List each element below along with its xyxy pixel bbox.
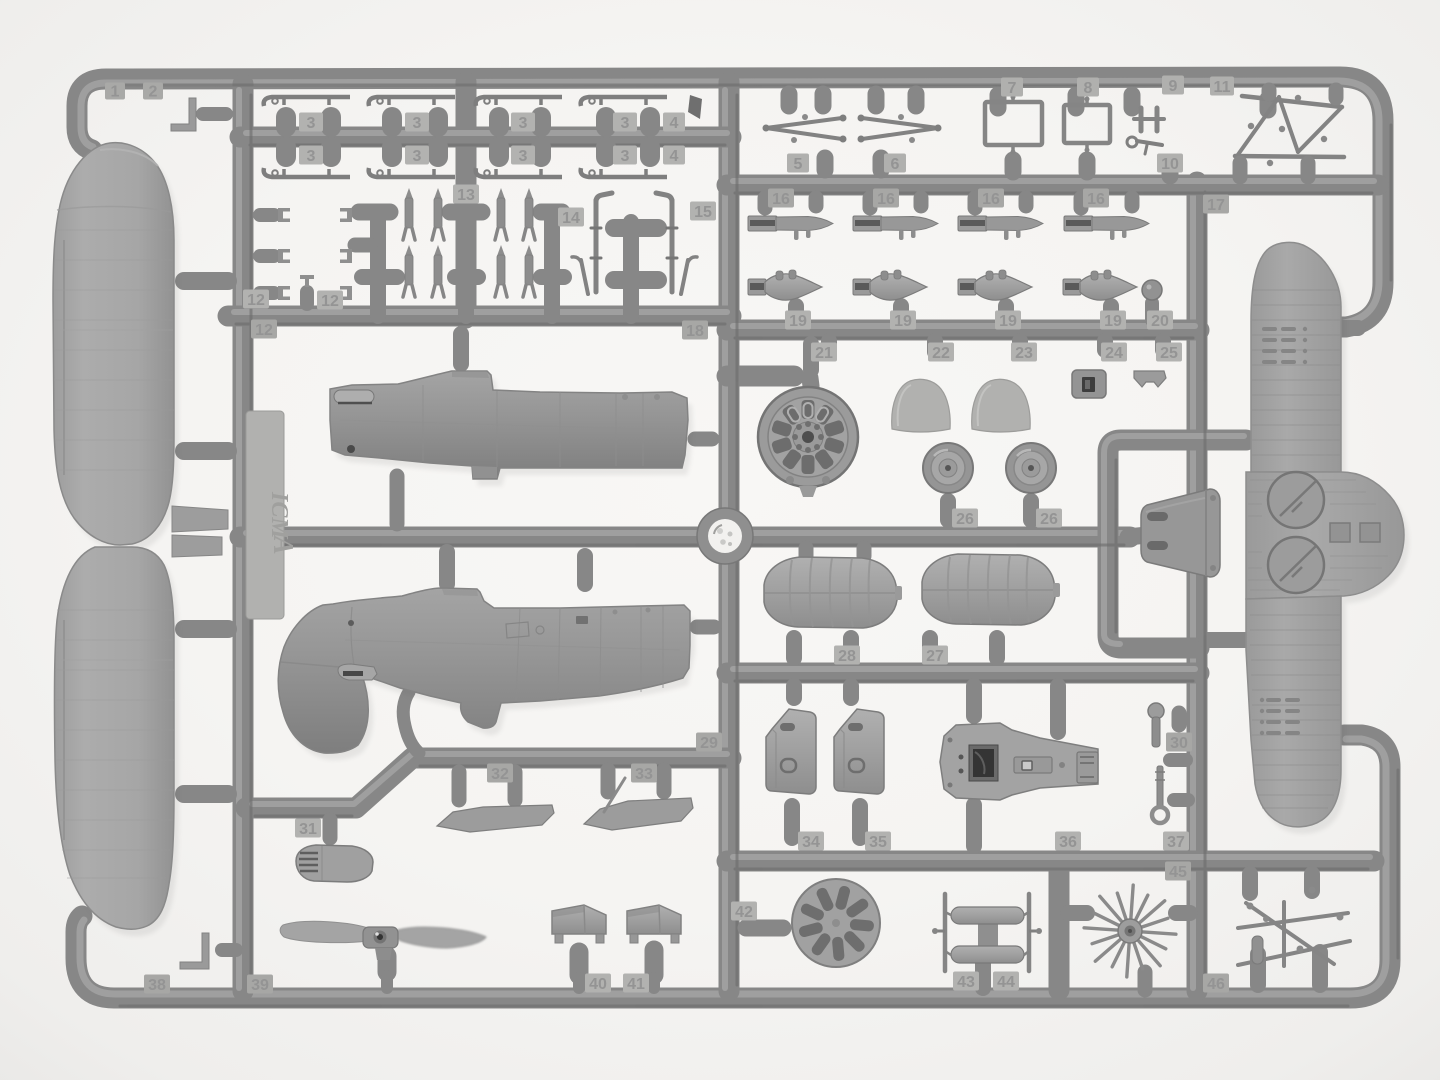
svg-text:20: 20 [1151,313,1169,330]
svg-text:3: 3 [519,115,528,132]
svg-text:14: 14 [562,210,580,227]
svg-text:16: 16 [877,191,895,208]
svg-text:16: 16 [1087,191,1105,208]
svg-text:27: 27 [926,648,944,665]
svg-text:19: 19 [894,313,912,330]
svg-text:23: 23 [1015,345,1033,362]
svg-text:45: 45 [1169,864,1187,881]
svg-text:3: 3 [307,115,316,132]
svg-text:9: 9 [1169,78,1178,95]
svg-text:3: 3 [413,148,422,165]
svg-text:12: 12 [247,292,265,309]
svg-text:3: 3 [519,148,528,165]
svg-text:16: 16 [982,191,1000,208]
svg-text:11: 11 [1214,79,1231,96]
svg-text:16: 16 [772,191,790,208]
svg-text:A: A [267,534,298,555]
svg-text:3: 3 [621,148,630,165]
svg-text:8: 8 [1084,80,1093,97]
svg-text:34: 34 [802,834,820,851]
svg-text:6: 6 [891,156,900,173]
svg-text:24: 24 [1105,345,1123,362]
svg-text:43: 43 [957,974,975,991]
svg-text:ICM: ICM [266,491,292,540]
svg-text:12: 12 [321,293,339,310]
svg-text:13: 13 [457,187,475,204]
svg-text:40: 40 [589,976,607,993]
svg-text:29: 29 [700,735,718,752]
svg-text:46: 46 [1207,976,1225,993]
svg-text:12: 12 [255,322,273,339]
svg-text:31: 31 [299,821,317,838]
svg-text:28: 28 [838,648,856,665]
svg-text:5: 5 [794,156,803,173]
svg-text:21: 21 [815,345,833,362]
svg-text:35: 35 [869,834,887,851]
svg-text:3: 3 [621,115,630,132]
svg-text:26: 26 [956,511,974,528]
svg-text:4: 4 [670,115,679,132]
svg-text:15: 15 [694,204,712,221]
svg-text:19: 19 [1104,313,1122,330]
svg-text:37: 37 [1167,834,1185,851]
svg-text:33: 33 [635,766,653,783]
svg-text:19: 19 [999,313,1017,330]
svg-text:22: 22 [932,345,950,362]
svg-text:44: 44 [997,974,1015,991]
svg-text:30: 30 [1170,735,1188,752]
svg-text:19: 19 [789,313,807,330]
svg-text:38: 38 [148,977,166,994]
svg-text:10: 10 [1161,156,1179,173]
svg-text:41: 41 [627,976,645,993]
svg-text:39: 39 [251,977,269,994]
svg-text:7: 7 [1008,80,1017,97]
svg-text:3: 3 [307,148,316,165]
svg-text:26: 26 [1040,511,1058,528]
svg-text:25: 25 [1160,345,1178,362]
svg-text:42: 42 [735,904,753,921]
svg-text:32: 32 [491,766,509,783]
svg-text:3: 3 [413,115,422,132]
svg-text:2: 2 [149,84,158,101]
svg-text:4: 4 [670,148,679,165]
svg-text:17: 17 [1207,197,1225,214]
svg-text:18: 18 [686,323,704,340]
svg-text:36: 36 [1059,834,1077,851]
svg-text:1: 1 [111,84,120,101]
